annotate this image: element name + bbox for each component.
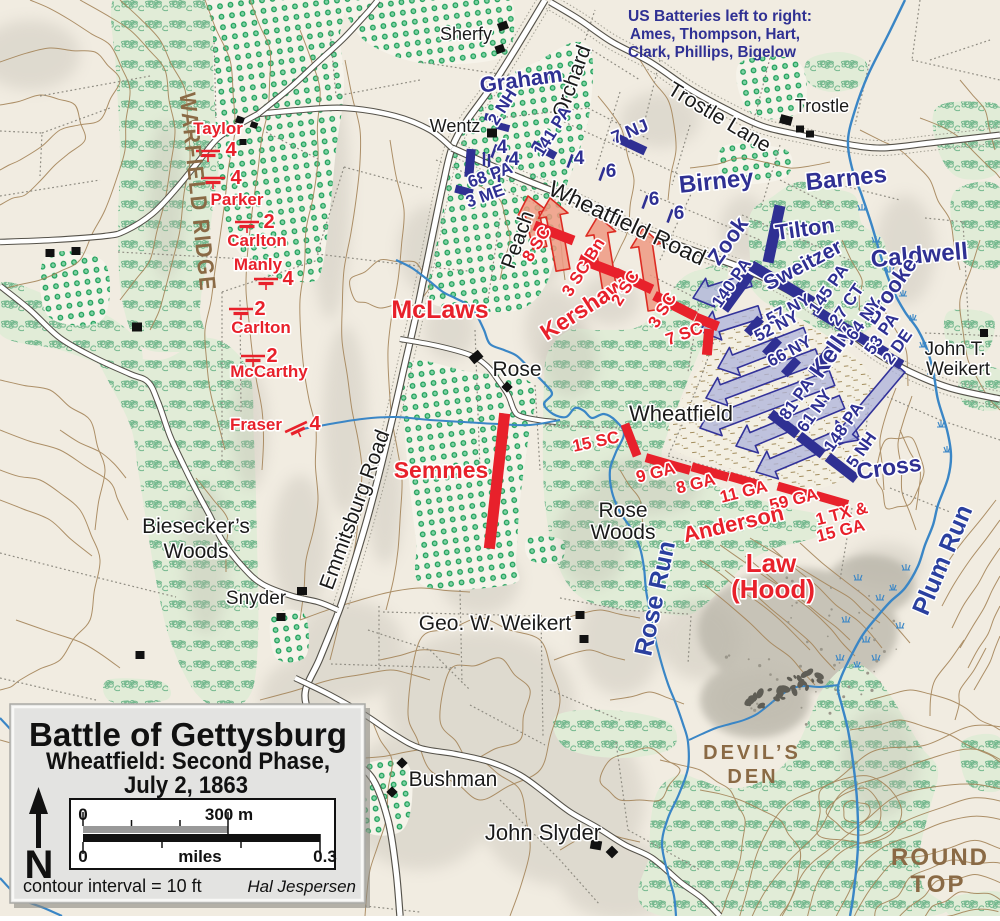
svg-text:Biesecker’s: Biesecker’s	[142, 515, 250, 538]
svg-text:John Slyder: John Slyder	[485, 820, 601, 845]
svg-text:2: 2	[254, 298, 265, 320]
svg-text:TOP: TOP	[911, 871, 966, 898]
svg-text:6: 6	[606, 161, 617, 182]
svg-text:4: 4	[282, 268, 294, 290]
svg-text:(Hood): (Hood)	[731, 574, 815, 604]
svg-text:4: 4	[309, 413, 321, 435]
svg-text:Clark, Phillips, Bigelow: Clark, Phillips, Bigelow	[628, 44, 797, 61]
svg-text:Wheatfield: Wheatfield	[629, 401, 733, 426]
svg-text:0.3: 0.3	[313, 847, 337, 866]
svg-text:2: 2	[263, 211, 274, 233]
svg-text:Woods: Woods	[591, 521, 656, 544]
svg-text:Carlton: Carlton	[231, 318, 291, 337]
svg-text:US Batteries left to right:: US Batteries left to right:	[628, 8, 812, 25]
svg-text:0: 0	[78, 847, 87, 866]
svg-text:0: 0	[78, 805, 87, 824]
svg-text:Bushman: Bushman	[409, 768, 498, 791]
svg-text:Taylor: Taylor	[193, 119, 243, 138]
svg-text:miles: miles	[178, 847, 221, 866]
svg-text:contour interval = 10 ft: contour interval = 10 ft	[23, 876, 202, 896]
svg-text:Rose: Rose	[598, 499, 647, 522]
svg-text:Semmes: Semmes	[394, 457, 489, 483]
svg-text:McCarthy: McCarthy	[230, 362, 308, 381]
svg-text:Rose: Rose	[492, 358, 541, 381]
svg-text:Wentz: Wentz	[430, 116, 481, 136]
svg-text:Weikert: Weikert	[926, 359, 991, 380]
svg-text:4: 4	[574, 148, 585, 169]
svg-text:Geo. W. Weikert: Geo. W. Weikert	[419, 612, 572, 635]
svg-text:6: 6	[674, 203, 685, 224]
svg-text:DEVIL’S: DEVIL’S	[703, 742, 801, 764]
svg-text:July 2, 1863: July 2, 1863	[124, 772, 248, 799]
svg-text:DEN: DEN	[727, 766, 778, 788]
svg-text:Hal Jespersen: Hal Jespersen	[247, 877, 356, 896]
svg-text:John T.: John T.	[925, 339, 986, 360]
svg-text:Parker: Parker	[211, 190, 264, 209]
svg-text:ROUND: ROUND	[891, 844, 989, 871]
svg-text:Trostle: Trostle	[795, 96, 849, 116]
svg-text:Sherfy: Sherfy	[440, 24, 492, 44]
svg-text:Wheatfield: Second Phase,: Wheatfield: Second Phase,	[46, 748, 330, 775]
svg-text:4: 4	[230, 167, 242, 189]
svg-text:Woods: Woods	[164, 540, 229, 563]
svg-text:4: 4	[497, 137, 508, 158]
svg-text:300 m: 300 m	[205, 805, 253, 824]
svg-text:6: 6	[649, 189, 660, 210]
svg-text:Fraser: Fraser	[230, 415, 282, 434]
svg-text:4: 4	[225, 139, 237, 161]
svg-text:Snyder: Snyder	[226, 588, 287, 609]
svg-text:Ames, Thompson, Hart,: Ames, Thompson, Hart,	[630, 26, 800, 43]
svg-text:McLaws: McLaws	[391, 296, 488, 324]
svg-text:Manly: Manly	[234, 255, 283, 274]
svg-text:Carlton: Carlton	[227, 231, 287, 250]
